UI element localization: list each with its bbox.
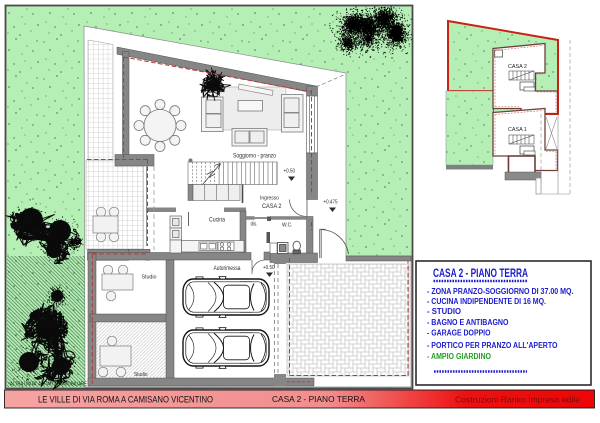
svg-text:+0.475: +0.475 xyxy=(324,200,338,206)
svg-text:Studio: Studio xyxy=(134,372,148,378)
svg-text:- STUDIO: - STUDIO xyxy=(427,307,461,316)
svg-text:- AMPIO GIARDINO: - AMPIO GIARDINO xyxy=(427,352,491,361)
svg-text:W.C.: W.C. xyxy=(282,223,293,229)
svg-text:- CUCINA INDIPENDENTE DI 16 MQ: - CUCINA INDIPENDENTE DI 16 MQ. xyxy=(427,297,546,306)
svg-text:CASA 2: CASA 2 xyxy=(508,64,527,70)
svg-text:dis.: dis. xyxy=(251,222,258,228)
svg-text:+0.50: +0.50 xyxy=(263,265,275,271)
svg-text:- PORTICO PER PRANZO ALL'APERT: - PORTICO PER PRANZO ALL'APERTO xyxy=(427,341,558,350)
svg-text:Cucina: Cucina xyxy=(209,218,226,224)
svg-text:- GARAGE DOPPIO: - GARAGE DOPPIO xyxy=(427,329,491,338)
svg-text:Soggiorno - pranzo: Soggiorno - pranzo xyxy=(233,153,276,160)
svg-text:CASA 1: CASA 1 xyxy=(508,127,527,133)
svg-text:- BAGNO E ANTIBAGNO: - BAGNO E ANTIBAGNO xyxy=(427,318,509,327)
svg-text:CASA 2 - PIANO TERRA: CASA 2 - PIANO TERRA xyxy=(272,394,365,404)
svg-text:CASA 2 - PIANO TERRA: CASA 2 - PIANO TERRA xyxy=(433,268,528,280)
svg-text:+0.50: +0.50 xyxy=(284,169,296,175)
svg-text:Autorimessa: Autorimessa xyxy=(214,265,241,272)
svg-text:Ingresso: Ingresso xyxy=(260,196,279,202)
svg-text:- ZONA PRANZO-SOGGIORNO DI 37.: - ZONA PRANZO-SOGGIORNO DI 37.00 MQ. xyxy=(427,287,574,296)
svg-text:CASA 2: CASA 2 xyxy=(262,203,282,210)
svg-text:ALTRA UNITA' ABITATIVA IMMOBIL: ALTRA UNITA' ABITATIVA IMMOBILIARE xyxy=(10,382,87,388)
svg-text:Studio: Studio xyxy=(142,275,157,281)
svg-text:Costruzioni Ranko Impresa edil: Costruzioni Ranko Impresa edile xyxy=(455,395,580,405)
svg-text:LE VILLE DI VIA ROMA A CAMISAN: LE VILLE DI VIA ROMA A CAMISANO VICENTIN… xyxy=(38,395,213,405)
